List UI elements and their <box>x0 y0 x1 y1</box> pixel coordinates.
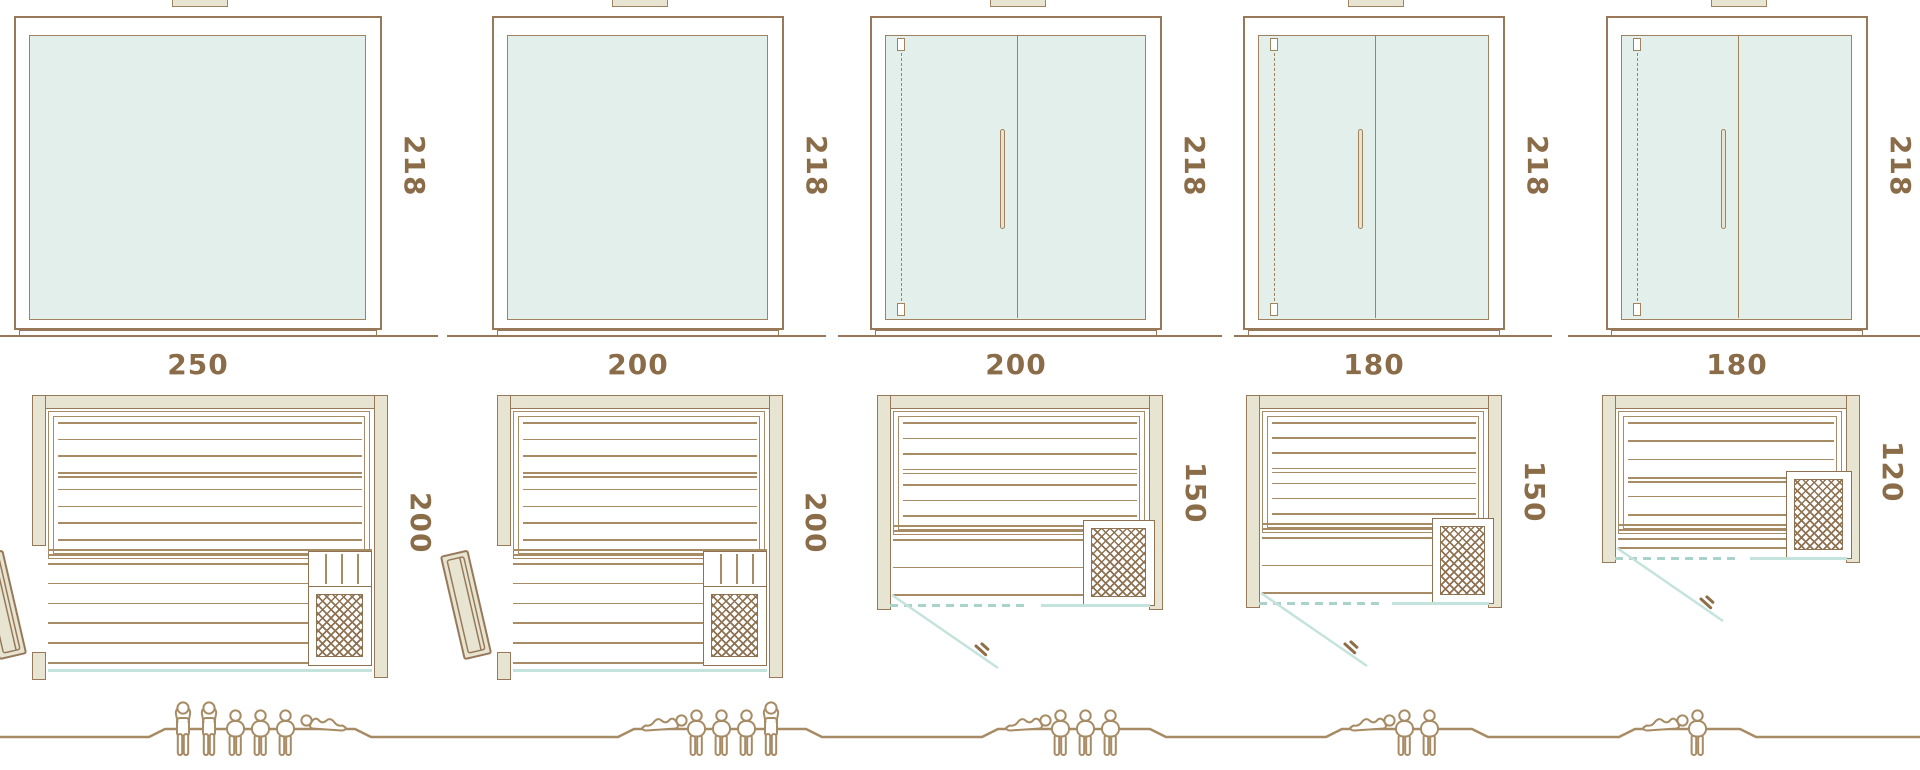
door-hinge-bottom <box>897 303 905 316</box>
back-wall <box>32 395 388 409</box>
floor-plan-drawing-1 <box>32 395 388 682</box>
floor-plan-drawing-4 <box>1246 395 1502 612</box>
glass-front-line <box>513 669 767 672</box>
upper-bench-slat <box>1272 472 1476 474</box>
back-wall <box>497 395 783 409</box>
roof-vent-stub <box>612 0 668 7</box>
upper-bench-slat <box>903 422 1137 424</box>
lying-person-icon <box>1350 715 1394 730</box>
ground-line-segment <box>447 335 826 337</box>
left-wall <box>497 395 511 546</box>
seated-person-icon <box>688 710 705 755</box>
upper-bench-slat <box>58 476 362 478</box>
ground-line-segment <box>1234 335 1552 337</box>
upper-bench-slat <box>903 500 1137 502</box>
seated-person-icon <box>277 710 294 755</box>
left-wall <box>877 395 891 610</box>
upper-bench-slat <box>523 489 757 491</box>
lying-person-icon <box>642 715 686 730</box>
upper-bench-slat <box>523 506 757 508</box>
left-wall <box>1246 395 1260 608</box>
capacity-pictograms <box>176 702 1706 755</box>
back-wall <box>877 395 1163 409</box>
upper-bench-slat <box>523 539 757 541</box>
step-bench-slat <box>357 554 359 584</box>
glass-door-open-dashed-line <box>1615 557 1736 560</box>
front-height-dimension-5: 218 <box>1886 135 1914 195</box>
right-wall <box>769 395 783 678</box>
glass-front-line <box>48 669 372 672</box>
upper-bench-slat <box>523 522 757 524</box>
floor-plan-drawing-2 <box>497 395 783 682</box>
roof-vent-stub <box>172 0 228 7</box>
glass-door-open-dashed-line <box>1259 602 1379 605</box>
sauna-heater <box>308 586 372 666</box>
ground-line-segment <box>0 335 438 337</box>
seated-person-icon <box>738 710 755 755</box>
upper-bench-slat <box>1628 440 1834 442</box>
front-width-dimension-2: 200 <box>492 351 784 379</box>
upper-bench-slat <box>523 439 757 441</box>
upper-bench-slat <box>1272 498 1476 500</box>
glass-door-edge-line <box>1017 36 1019 318</box>
heater-grille <box>1794 479 1843 550</box>
left-wall-foot <box>32 652 46 680</box>
upper-bench-slat <box>903 438 1137 440</box>
seated-person-icon <box>1689 710 1706 755</box>
heater-grille <box>1440 526 1485 595</box>
glass-front-panel <box>29 35 366 320</box>
upper-bench-slat <box>58 522 362 524</box>
heater-grille <box>711 594 758 657</box>
plan-depth-dimension-1: 200 <box>406 492 434 552</box>
door-hinge-top <box>897 38 905 51</box>
ground-line-segment <box>1568 335 1920 337</box>
back-wall <box>1602 395 1860 409</box>
sauna-interior <box>511 409 769 678</box>
standing-person-icon <box>764 702 778 755</box>
glass-front-panel <box>507 35 768 320</box>
seated-person-icon <box>713 710 730 755</box>
upper-bench-slat <box>58 472 362 474</box>
hinge-side-dashed-line <box>901 38 902 316</box>
front-width-dimension-4: 180 <box>1243 351 1505 379</box>
upper-bench-slat <box>903 453 1137 455</box>
plan-depth-dimension-5: 120 <box>1878 441 1906 501</box>
seated-person-icon <box>1396 710 1413 755</box>
upper-bench-slat <box>1272 513 1476 515</box>
standing-person-icon <box>176 702 190 755</box>
glass-door-edge-line <box>1738 36 1740 318</box>
upper-bench-slat <box>58 489 362 491</box>
plan-depth-dimension-3: 150 <box>1181 462 1209 522</box>
sauna-heater <box>1786 471 1852 559</box>
front-height-dimension-1: 218 <box>400 135 428 195</box>
door-hinge-bottom <box>1633 303 1641 316</box>
upper-bench-slat <box>523 476 757 478</box>
upper-bench-slat <box>903 484 1137 486</box>
capacity-ground-profile <box>0 729 1920 737</box>
left-wall <box>1602 395 1616 563</box>
upper-bench-slat <box>58 439 362 441</box>
front-width-dimension-3: 200 <box>870 351 1162 379</box>
step-bench-vertical-slats <box>308 551 372 587</box>
door-handle-bar <box>1721 129 1726 229</box>
hinge-side-dashed-line <box>1637 38 1638 316</box>
floor-plan-drawing-3 <box>877 395 1163 614</box>
sauna-interior <box>46 409 374 678</box>
glass-door-open-dashed-line <box>890 604 1025 607</box>
front-elevation-drawing-5 <box>1606 16 1868 330</box>
seated-person-icon <box>1421 710 1438 755</box>
seated-person-icon <box>1102 710 1119 755</box>
lying-person-icon <box>1643 715 1687 730</box>
upper-bench-slat <box>58 455 362 457</box>
upper-bench-slat <box>523 422 757 424</box>
ground-line-segment <box>838 335 1222 337</box>
lying-person-icon <box>301 715 345 730</box>
door-handle-icon <box>1701 595 1714 608</box>
fixed-glass-front-line <box>1041 604 1150 607</box>
plan-depth-dimension-2: 200 <box>801 492 829 552</box>
glass-front-panel <box>885 35 1146 320</box>
step-bench-slat <box>325 554 327 584</box>
upper-bench-slat <box>523 455 757 457</box>
sauna-heater <box>1083 520 1155 606</box>
open-wood-door-leaf <box>0 551 26 659</box>
step-bench-slat <box>736 554 738 584</box>
upper-bench-slat <box>1272 437 1476 439</box>
upper-bench-slat <box>1272 468 1476 470</box>
sauna-size-diagram: 250 218 200 200 218 200 200 218 150 180 … <box>0 0 1920 770</box>
standing-person-icon <box>202 702 216 755</box>
sauna-heater <box>703 586 767 666</box>
step-bench-slat <box>720 554 722 584</box>
front-elevation-drawing-4 <box>1243 16 1505 330</box>
glass-front-panel <box>1621 35 1852 320</box>
door-handle-icon <box>976 642 989 655</box>
upper-bench-slat <box>1628 422 1834 424</box>
left-wall <box>32 395 46 546</box>
upper-bench-slat <box>58 506 362 508</box>
heater-grille <box>316 594 363 657</box>
upper-bench-slat <box>58 539 362 541</box>
plan-depth-dimension-4: 150 <box>1520 461 1548 521</box>
roof-vent-stub <box>1348 0 1404 7</box>
upper-bench-slat <box>523 472 757 474</box>
door-handle-bar <box>1000 129 1005 229</box>
roof-vent-stub <box>1711 0 1767 7</box>
roof-vent-stub <box>990 0 1046 7</box>
upper-bench-slat <box>58 422 362 424</box>
upper-bench-slat <box>1628 459 1834 461</box>
seated-person-icon <box>227 710 244 755</box>
heater-grille <box>1091 528 1146 597</box>
door-hinge-bottom <box>1270 303 1278 316</box>
step-bench-vertical-slats <box>703 551 767 587</box>
upper-bench-slat <box>903 473 1137 475</box>
wall-lining-inner <box>518 416 760 554</box>
seated-person-icon <box>252 710 269 755</box>
step-bench-slat <box>341 554 343 584</box>
upper-bench-slat <box>1272 483 1476 485</box>
left-wall-foot <box>497 652 511 680</box>
step-bench-slat <box>752 554 754 584</box>
seated-person-icon <box>1052 710 1069 755</box>
seated-person-icon <box>1077 710 1094 755</box>
front-width-dimension-1: 250 <box>14 351 382 379</box>
sauna-heater <box>1432 518 1494 604</box>
fixed-glass-front-line <box>1392 602 1489 605</box>
back-wall <box>1246 395 1502 409</box>
front-elevation-drawing-3 <box>870 16 1162 330</box>
hinge-side-dashed-line <box>1274 38 1275 316</box>
front-elevation-drawing-1 <box>14 16 382 330</box>
floor-plan-drawing-5 <box>1602 395 1860 567</box>
upper-bench-slat <box>1272 452 1476 454</box>
door-handle-bar <box>1358 129 1363 229</box>
front-height-dimension-4: 218 <box>1523 135 1551 195</box>
open-wood-door-leaf <box>441 551 491 659</box>
right-wall <box>374 395 388 678</box>
glass-door-edge-line <box>1375 36 1377 318</box>
upper-bench-slat <box>903 469 1137 471</box>
door-hinge-top <box>1270 38 1278 51</box>
front-height-dimension-2: 218 <box>802 135 830 195</box>
front-height-dimension-3: 218 <box>1180 135 1208 195</box>
upper-bench-slat <box>1272 422 1476 424</box>
wall-lining-inner <box>53 416 365 554</box>
front-elevation-drawing-2 <box>492 16 784 330</box>
upper-bench-slat <box>903 515 1137 517</box>
lying-person-icon <box>1006 715 1050 730</box>
fixed-glass-front-line <box>1750 557 1847 560</box>
door-hinge-top <box>1633 38 1641 51</box>
front-width-dimension-5: 180 <box>1606 351 1868 379</box>
glass-front-panel <box>1258 35 1489 320</box>
door-handle-icon <box>1345 640 1358 653</box>
